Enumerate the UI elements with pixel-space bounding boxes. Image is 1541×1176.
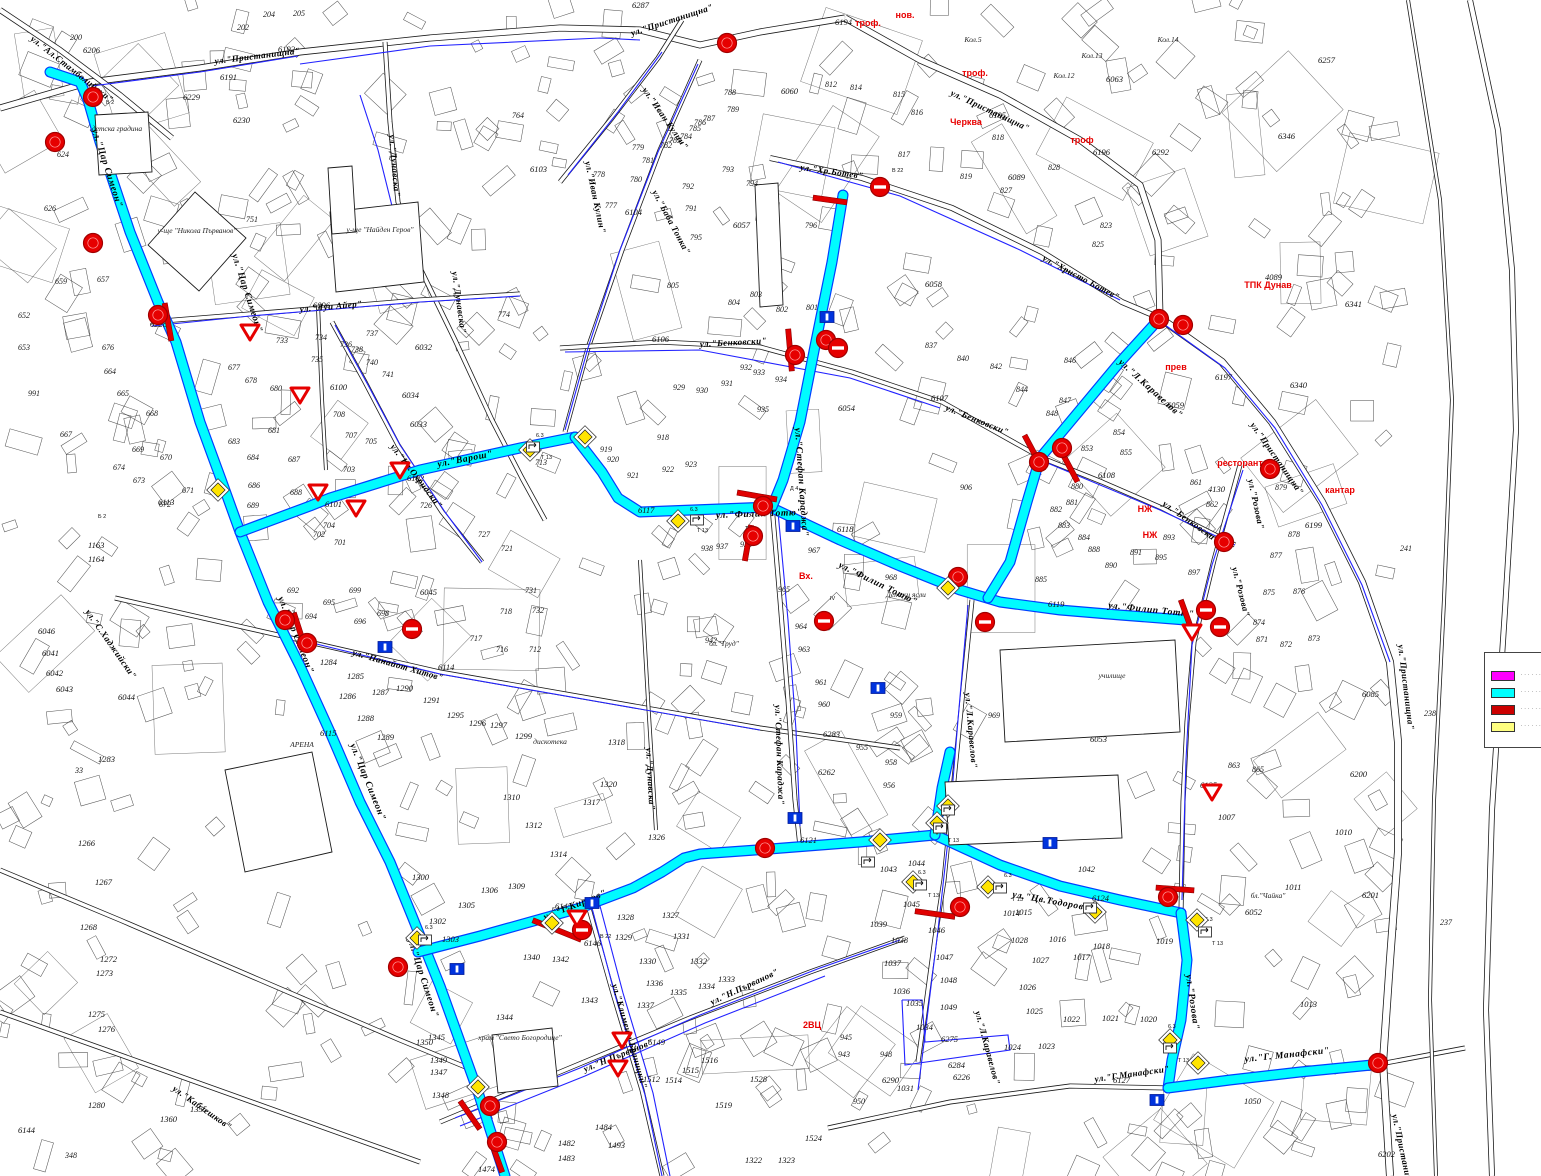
parcel-number: 825 [1092, 240, 1104, 249]
parcel-number: 667 [60, 430, 73, 439]
parcel-number: 1043 [880, 864, 897, 874]
parcel-number: 1322 [745, 1155, 763, 1165]
street-name-label: ул."Цар Симеон" [229, 252, 264, 334]
parcel-number: 888 [1088, 545, 1100, 554]
parcel-number: 6063 [1106, 74, 1123, 84]
parcel-number: 1348 [432, 1090, 450, 1100]
info-sign-icon [1164, 1043, 1177, 1053]
parcel-number: 1031 [897, 1083, 914, 1093]
stop-sign-icon [488, 1133, 507, 1152]
road [0, 18, 845, 108]
parcel-number: 6287 [632, 0, 650, 10]
parcel-number: 1333 [718, 974, 735, 984]
parcel-number: 1306 [481, 885, 499, 895]
parcel-number: 1288 [357, 713, 375, 723]
map-stage: 2006206202204205619261916229623062462675… [0, 0, 1541, 1176]
stop-sign-icon [1369, 1054, 1388, 1073]
parcel-number: 1017 [1073, 952, 1091, 962]
parcel-number: 6199 [1305, 520, 1323, 530]
parcel-number: 1337 [637, 1000, 655, 1010]
parcel-number: 958 [885, 758, 897, 767]
yield-sign-icon [291, 388, 309, 403]
building-outline [755, 183, 783, 307]
sign-code-label: В 22 [892, 168, 903, 174]
parcel-number: 764 [512, 111, 524, 120]
stop-sign-icon [786, 346, 805, 365]
red-annotation-label: Вх. [799, 571, 813, 581]
parcel-number: 703 [343, 465, 355, 474]
parcel-number: 781 [642, 156, 654, 165]
parcel-number: 1344 [496, 1012, 514, 1022]
building-outline [328, 166, 356, 234]
street-name-label: ул."Бенковски" [943, 402, 1010, 437]
parcel-number: 741 [382, 370, 394, 379]
parcel-number: 863 [1228, 761, 1240, 770]
parcel-number: 842 [990, 362, 1002, 371]
parcel-number: 1515 [682, 1065, 699, 1075]
parcel-number: 922 [662, 465, 674, 474]
parcel-number: 6262 [818, 767, 836, 777]
parcel-number: 6101 [325, 499, 342, 509]
parcel-number: 6034 [402, 390, 420, 400]
parcel-number: 1034 [916, 1022, 934, 1032]
parcel-number: 6191 [220, 72, 237, 82]
parcel-number: 1295 [447, 710, 464, 720]
parcel-number: 673 [133, 476, 145, 485]
parcel-number: 6046 [38, 626, 56, 636]
parcel-number: 6060 [781, 86, 799, 96]
parcel-number: 920 [607, 455, 619, 464]
parcel-number: 626 [44, 204, 56, 213]
parcel-number: 950 [853, 1097, 865, 1106]
parcel-number: 735 [311, 355, 323, 364]
parcel-number: 738 [351, 345, 363, 354]
info-sign-icon [1199, 927, 1212, 937]
parcel-number: 893 [1163, 533, 1175, 542]
legend-label-red: ········· [1520, 707, 1541, 712]
parcel-number: 6292 [1152, 147, 1170, 157]
parcel-number: 6206 [83, 45, 101, 55]
parcel-number: 689 [247, 501, 259, 510]
sign-code-label: 6.3 [1004, 873, 1012, 879]
parcel-number: 1320 [600, 779, 618, 789]
parcel-number: 1011 [1285, 882, 1301, 892]
blue-route-line [565, 350, 940, 408]
parcel-number: 1312 [525, 820, 543, 830]
parcel-number: 1268 [80, 922, 98, 932]
red-annotation-label: нов. [896, 10, 915, 20]
parcel-number: 855 [1120, 448, 1132, 457]
stop-sign-icon [754, 497, 773, 516]
parcel-number: 1007 [1218, 812, 1236, 822]
parcel-number: 1514 [665, 1075, 683, 1085]
red-annotation-label: кантар [1325, 485, 1355, 495]
poi-label: у-ще "Найден Геров" [345, 225, 414, 234]
poi-label: бл."Чайка" [1251, 891, 1287, 900]
yield-sign-icon [347, 501, 365, 516]
poi-label: дискотека [533, 737, 567, 746]
parcel-number: 681 [268, 426, 280, 435]
parcel-number: 698 [377, 609, 389, 618]
parcel-number: 733 [276, 336, 288, 345]
parcel-number: 1349 [430, 1055, 448, 1065]
blue-route-line [455, 940, 900, 1118]
parcel-number: 872 [1280, 640, 1292, 649]
parcel-number: 1018 [1093, 941, 1111, 951]
parcel-number: 877 [1270, 551, 1283, 560]
parcel-number: 1028 [1011, 935, 1029, 945]
parcel-number: 873 [1308, 634, 1320, 643]
legend-label-yellow: ········· [1520, 724, 1541, 729]
legend-swatch-cyan [1491, 688, 1515, 698]
parcel-number: 1326 [648, 832, 666, 842]
street-name-label: ул."Л.Каравелов" [973, 1009, 1003, 1086]
parcel-number: 919 [600, 445, 612, 454]
street-name-label: ул."Г. Манафски" [1243, 1045, 1330, 1065]
stop-sign-icon [481, 1097, 500, 1116]
parcel-number: 882 [1050, 505, 1062, 514]
parcel-number: 1284 [320, 657, 338, 667]
parcel-number: 969 [988, 711, 1000, 720]
parcel-number: 964 [795, 622, 807, 631]
parcel-number: 960 [818, 700, 830, 709]
parcel-number: 1163 [88, 540, 104, 550]
parcel-number: 794 [746, 179, 758, 188]
parcel-number: 6229 [183, 92, 201, 102]
stop-sign-icon [298, 634, 317, 653]
parcel-number: 875 [1263, 588, 1275, 597]
red-annotation-label: троф [1070, 135, 1093, 145]
parcel-number: 6041 [42, 648, 59, 658]
parcel-number: 819 [960, 172, 972, 181]
poi-label: храм "Свето Богородице" [477, 1033, 562, 1042]
parcel-number: 1524 [805, 1133, 823, 1143]
street-name-label: ул."Г.Манафски" [1093, 1064, 1170, 1085]
stop-sign-icon [718, 34, 737, 53]
stop-sign-icon [149, 306, 168, 325]
parcel-number: 1266 [78, 838, 96, 848]
parcel-number: 677 [228, 363, 241, 372]
parcel-number: 1285 [347, 671, 364, 681]
parcel-number: 688 [290, 488, 302, 497]
parcel-number: 931 [721, 379, 733, 388]
parcel-number: 6290 [882, 1075, 900, 1085]
parcel-number: 1026 [1019, 982, 1037, 992]
parcel-number: 6057 [733, 220, 751, 230]
parcel-number: 6257 [1318, 55, 1336, 65]
road [1470, 0, 1516, 1176]
parcel-number: 854 [1113, 428, 1125, 437]
parcel-number: 1314 [550, 849, 568, 859]
legend-row-cyan: ········· [1491, 684, 1541, 701]
parcel-number: 6106 [652, 334, 670, 344]
cadastral-map-canvas: 2006206202204205619261916229623062462675… [0, 0, 1541, 1176]
parcel-number: 6107 [931, 393, 949, 403]
info-sign-icon [942, 805, 955, 815]
parcel-number: 1276 [98, 1024, 116, 1034]
parcel-number: 1331 [673, 931, 690, 941]
parcel-number: 707 [345, 431, 358, 440]
building-outline [225, 752, 332, 872]
legend-label-magenta: ·········· [1520, 673, 1541, 678]
parcel-number: 1273 [96, 968, 113, 978]
parcel-number: 668 [146, 409, 158, 418]
parcel-number: 238 [1424, 709, 1436, 718]
parcel-number: 1283 [98, 754, 115, 764]
street-name-label: ул."Дунавска" [387, 133, 402, 197]
road-closure-bar-icon [915, 909, 955, 920]
poi-label: Кол.13 [1081, 51, 1103, 60]
poi-label: детска градина [92, 124, 142, 133]
parcel-number: 6196 [1093, 147, 1111, 157]
parcel-number: 664 [104, 367, 116, 376]
parcel-number: 6340 [1290, 380, 1308, 390]
parcel-number: 879 [1275, 483, 1287, 492]
parcel-number: 865 [1252, 765, 1264, 774]
parcel-number: 791 [685, 204, 697, 213]
parcel-number: 948 [880, 1050, 892, 1059]
parcel-number: 6053 [1090, 734, 1107, 744]
parcel-number: 1474 [478, 1164, 496, 1174]
red-annotation-label: Черква [950, 117, 983, 127]
parcel-number: 1286 [339, 691, 357, 701]
parcel-number: 6032 [415, 342, 433, 352]
parcel-number: 1164 [88, 554, 105, 564]
street-name-label: ул."Луи Айер" [298, 299, 363, 315]
parcel-number: 1305 [458, 900, 475, 910]
parcel-number: 1019 [1156, 936, 1174, 946]
parcel-number: 694 [305, 612, 317, 621]
parcel-number: 1342 [552, 954, 570, 964]
parcel-number: 1493 [608, 1140, 625, 1150]
parcel-number: 721 [501, 544, 513, 553]
parcel-number: 1528 [750, 1074, 768, 1084]
parcel-number: 795 [690, 233, 702, 242]
parcel-number: 1335 [670, 987, 687, 997]
parcel-number: 6115 [320, 728, 336, 738]
parcel-number: 712 [529, 645, 541, 654]
parcel-number: 1036 [893, 986, 911, 996]
parcel-number: 1039 [870, 919, 888, 929]
parcel-number: 6117 [638, 505, 655, 515]
parcel-number: 1048 [940, 975, 958, 985]
parcel-number: 6121 [800, 835, 817, 845]
parcel-number: 1025 [1026, 1006, 1043, 1016]
parcel-number: 787 [703, 114, 716, 123]
parcel-number: 827 [1000, 186, 1013, 195]
parcel-number: 1275 [88, 1009, 105, 1019]
poi-label: Детски ясли [885, 590, 926, 599]
parcel-number: 906 [960, 483, 972, 492]
parcel-number: 6283 [823, 729, 840, 739]
parcel-number: 731 [525, 586, 537, 595]
poi-label: у-ще "Никола Първанов" [157, 226, 238, 235]
stop-sign-icon [744, 527, 763, 546]
sign-code-label: 6.3 [918, 870, 926, 876]
parcel-number: 6118 [837, 524, 854, 534]
street-name-label: ул."Стефан Караджа" [773, 704, 787, 806]
parcel-number: 1303 [442, 934, 459, 944]
parcel-number: 751 [246, 215, 258, 224]
sign-code-label: Т 13 [697, 528, 708, 534]
street-name-label: ул."Розова" [1230, 565, 1252, 618]
building-outline [1000, 640, 1180, 742]
parcel-number: 683 [228, 437, 240, 446]
parcel-number: 1340 [523, 952, 541, 962]
parcel-number: 1049 [940, 1002, 958, 1012]
parcel-number: 678 [245, 376, 257, 385]
map-legend: ····· ·········· ········· ········· ···… [1484, 652, 1541, 748]
parcel-number: 6052 [1245, 907, 1263, 917]
parcel-number: 669 [132, 445, 144, 454]
stop-sign-icon [1159, 888, 1178, 907]
yield-sign-icon [1203, 785, 1221, 800]
parcel-number: 657 [97, 275, 110, 284]
legend-title: ····· [1491, 657, 1541, 667]
parcel-number: 848 [1046, 409, 1058, 418]
parcel-number: 702 [313, 530, 325, 539]
parcel-number: 777 [605, 201, 618, 210]
parcel-number: 876 [1293, 587, 1305, 596]
parcel-number: 814 [850, 83, 862, 92]
parcel-number: 1310 [503, 792, 521, 802]
parcel-number: 1010 [1335, 827, 1353, 837]
sign-code-label: В 22 [600, 934, 611, 940]
legend-swatch-yellow [1491, 722, 1515, 732]
parcel-number: 6275 [941, 1034, 958, 1044]
sign-code-label: 6.3 [690, 507, 698, 513]
stop-sign-icon [1150, 310, 1169, 329]
parcel-number: 718 [500, 607, 512, 616]
parcel-number: 6033 [410, 419, 427, 429]
parcel-number: 6103 [530, 164, 547, 174]
parcel-number: 200 [70, 33, 82, 42]
parcel-number: 6201 [1362, 890, 1379, 900]
parcel-number: 881 [1066, 498, 1078, 507]
parcel-number: 348 [64, 1151, 77, 1160]
parcel-number: 671 [182, 486, 194, 495]
parcel-number: 1045 [903, 899, 920, 909]
street-name-label: ул."Христо Ботев" [1040, 252, 1121, 302]
parcel-number: 670 [160, 453, 172, 462]
parcel-number: 921 [627, 471, 639, 480]
parcel-number: 717 [470, 634, 483, 643]
parcel-number: 1047 [936, 952, 954, 962]
red-annotation-label: ТПК Дунав [1244, 280, 1292, 290]
info-sign-icon [527, 442, 540, 452]
street-name-label: ул."Пристанищна" [1390, 1112, 1418, 1176]
parcel-number: 1035 [906, 998, 923, 1008]
parcel-number: 705 [365, 437, 377, 446]
stop-sign-icon [84, 88, 103, 107]
parcel-number: 665 [117, 389, 129, 398]
parcel-number: 1290 [396, 683, 414, 693]
parcel-number: 890 [1105, 561, 1117, 570]
street-name-label: ул."Варош" [436, 449, 494, 470]
info-sign-icon [862, 857, 875, 867]
legend-row-magenta: ·········· [1491, 667, 1541, 684]
stop-sign-icon [1261, 460, 1280, 479]
parcel-number: 793 [722, 165, 734, 174]
parcel-number: 1483 [558, 1153, 575, 1163]
parcel-number: 6284 [948, 1060, 966, 1070]
parcel-number: 938 [701, 544, 713, 553]
poi-label: Кол.14 [1157, 35, 1179, 44]
building-outline [945, 775, 1122, 845]
parcel-number: 880 [1071, 482, 1083, 491]
parcel-number: 796 [805, 221, 817, 230]
stop-sign-icon [1053, 439, 1072, 458]
parcel-number: 1482 [558, 1138, 576, 1148]
parcel-number: 884 [1078, 533, 1090, 542]
parcel-number: 923 [685, 460, 697, 469]
parcel-number: 1336 [646, 978, 664, 988]
parcel-number: 929 [673, 383, 685, 392]
blue-route-line [565, 64, 698, 430]
stop-sign-icon [276, 611, 295, 630]
parcel-number: 740 [366, 358, 378, 367]
parcel-number: 1046 [928, 925, 946, 935]
parcel-number: 726 [420, 501, 432, 510]
parcel-number: 871 [1256, 635, 1268, 644]
parcel-number: 792 [682, 182, 694, 191]
parcel-number: 1023 [1038, 1041, 1055, 1051]
parcel-number: 241 [1400, 544, 1412, 553]
parcel-number: 818 [992, 133, 1004, 142]
parcel-number: 6043 [56, 684, 73, 694]
parcel-number: 1291 [423, 695, 440, 705]
legend-swatch-red [1491, 705, 1515, 715]
roads-layer [0, 0, 1516, 1176]
parcel-number: 862 [1206, 500, 1218, 509]
parcel-number: 1309 [508, 881, 526, 891]
parcel-number: 205 [293, 9, 305, 18]
parcel-number: 1328 [617, 912, 635, 922]
parcel-number: 6085 [1362, 689, 1379, 699]
parcel-number: 1334 [698, 981, 716, 991]
street-name-label: ул."Розова" [1246, 477, 1267, 530]
parcel-number: 1345 [428, 1032, 445, 1042]
parcel-number: 1327 [662, 910, 680, 920]
parcel-number: 704 [323, 521, 335, 530]
sign-code-label: IV [830, 596, 836, 602]
parcel-number: 963 [798, 645, 810, 654]
parcel-number: 861 [1190, 478, 1202, 487]
blue-route-line [300, 38, 640, 64]
parcel-number: 1037 [884, 958, 902, 968]
poi-label: бл."Труд" [709, 639, 740, 648]
parcel-number: 653 [18, 343, 30, 352]
parcel-number: 708 [333, 410, 345, 419]
parcel-number: 956 [883, 781, 895, 790]
parcel-number: 684 [247, 453, 259, 462]
parcel-number: 789 [727, 105, 739, 114]
sign-code-label: 6.3 [536, 433, 544, 439]
parcel-number: 1027 [1032, 955, 1050, 965]
parcel-number: 33 [74, 766, 83, 775]
legend-label-cyan: ········· [1520, 690, 1541, 695]
parcel-number: 6230 [233, 115, 251, 125]
stop-sign-icon [1030, 453, 1049, 472]
street-name-label: ул."Дунавска" [450, 270, 469, 334]
parcel-number: 716 [496, 645, 508, 654]
parcel-number: 844 [1016, 385, 1028, 394]
red-annotation-label: 2ВЦ [803, 1020, 822, 1030]
stop-sign-icon [46, 133, 65, 152]
parcel-number: 696 [354, 617, 366, 626]
parcel-number: 674 [113, 463, 125, 472]
parcel-number: 780 [630, 175, 642, 184]
